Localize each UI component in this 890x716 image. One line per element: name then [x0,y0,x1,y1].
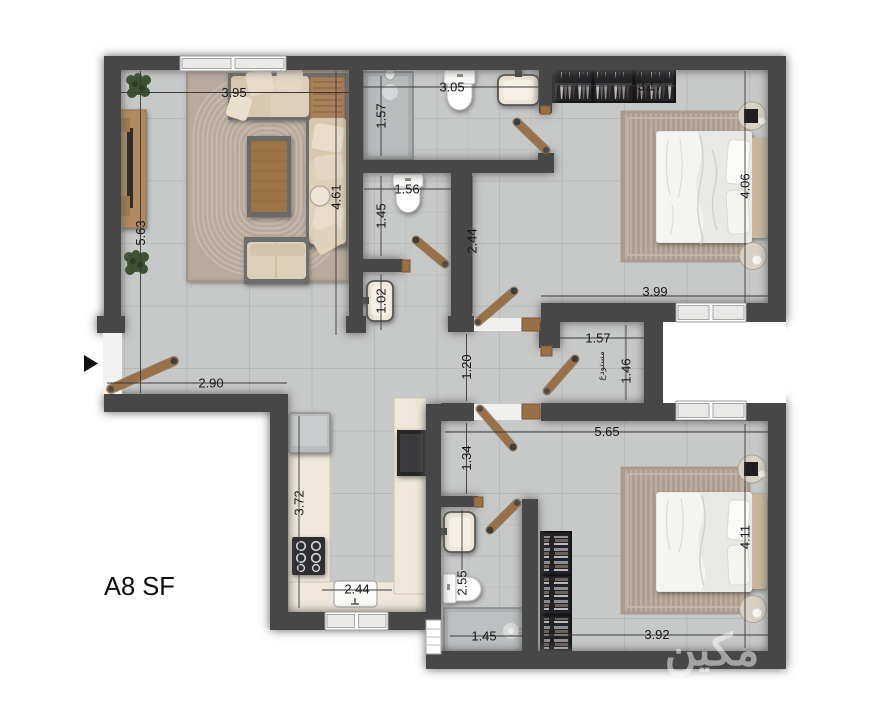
svg-text:4.06: 4.06 [738,173,753,198]
svg-text:1.57: 1.57 [374,103,389,128]
svg-text:4.61: 4.61 [329,184,344,209]
svg-text:3.17: 3.17 [637,79,662,94]
svg-text:1.02: 1.02 [374,288,389,313]
svg-text:1.46: 1.46 [619,358,634,383]
svg-text:1.57: 1.57 [585,331,610,346]
svg-text:2.90: 2.90 [198,376,223,391]
svg-text:1.34: 1.34 [459,445,474,470]
svg-text:3.05: 3.05 [439,80,464,95]
svg-text:3.99: 3.99 [642,284,667,299]
svg-text:2.44: 2.44 [465,228,480,253]
svg-text:5.65: 5.65 [594,424,619,439]
svg-text:1.56: 1.56 [394,182,419,197]
svg-text:4.11: 4.11 [738,525,753,549]
svg-text:3.95: 3.95 [221,85,246,100]
svg-text:1.45: 1.45 [471,629,496,644]
svg-text:1.20: 1.20 [459,354,474,379]
svg-text:3.72: 3.72 [292,490,307,515]
svg-text:5.63: 5.63 [133,220,148,245]
svg-text:2.44: 2.44 [344,582,369,597]
svg-text:A8 SF: A8 SF [104,573,175,601]
svg-text:مستودع: مستودع [596,351,607,381]
svg-text:مكين: مكين [665,626,760,677]
svg-text:1.45: 1.45 [374,203,389,228]
svg-text:2.55: 2.55 [455,570,470,595]
